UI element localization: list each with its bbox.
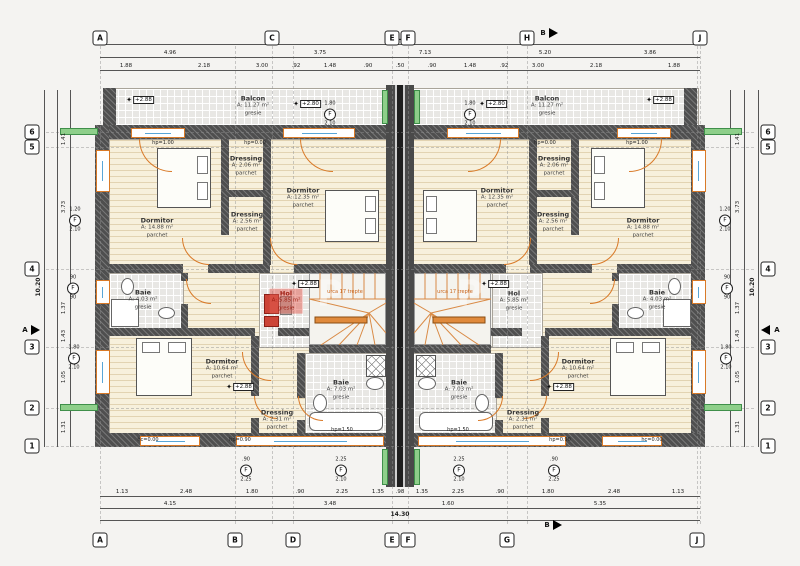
section-label-B: B — [544, 521, 549, 529]
window-type-icon: F — [335, 464, 347, 476]
section-arrow-B — [549, 28, 558, 38]
dimension-line — [100, 70, 700, 71]
sill-height-label: hp=0.00 — [534, 140, 556, 146]
room-name: Dormitor — [206, 358, 239, 366]
level-value: +2.88 — [653, 96, 674, 104]
room-area: A: 14.88 m² — [627, 225, 660, 232]
window-width: 1.20 — [719, 208, 731, 214]
room-name: Dressing — [507, 409, 539, 417]
grid-axis-line — [272, 46, 273, 524]
level-star-icon: ✦ — [293, 100, 299, 108]
sill-height-label: hc=0.00 — [641, 437, 662, 443]
room-label-hol[interactable]: HolA: 5.85 m²gresie — [270, 289, 303, 314]
window-height: 2.25 — [548, 477, 560, 483]
section-label-A: A — [774, 326, 779, 334]
room-name: Hol — [280, 290, 292, 298]
window-marker: 1.80F2.10 — [324, 102, 336, 127]
room-area: A: 2.31 m² — [261, 417, 293, 424]
room-label-dressing[interactable]: DressingA: 2.06 m²parchet — [230, 155, 262, 178]
room-floor-finish: parchet — [261, 424, 293, 431]
room-label-dormitor[interactable]: DormitorA: 12.35 m²parchet — [481, 187, 514, 210]
dimension-text: 3.86 — [644, 50, 656, 56]
grid-marker-F: F — [401, 31, 416, 46]
dimension-text: .50 — [396, 63, 405, 69]
dimension-text: 1.48 — [464, 63, 476, 69]
insulation-bar — [704, 404, 742, 411]
window-type-icon: F — [719, 214, 731, 226]
room-floor-finish: parchet — [481, 202, 514, 209]
window-width: 2.25 — [453, 458, 465, 464]
dimension-line — [730, 90, 731, 447]
room-area: A: 11.27 m² — [531, 103, 563, 110]
grid-marker-A: A — [93, 31, 108, 46]
room-floor-finish: parchet — [231, 226, 263, 233]
dimension-text: 7.13 — [419, 50, 431, 56]
sill-height-label: hp=0.90 — [549, 437, 571, 443]
dimension-text: 3.00 — [532, 63, 544, 69]
dim-total-width-bottom: 14.30 — [391, 511, 410, 518]
level-badge: ✦+2.88 — [481, 280, 509, 288]
window-frame — [131, 128, 185, 138]
level-value: +2.80 — [486, 100, 507, 108]
grid-marker-3: 3 — [25, 340, 40, 355]
room-floor-finish: parchet — [230, 170, 262, 177]
window-marker: 90F90 — [67, 276, 79, 301]
interior-wall — [297, 420, 305, 433]
room-name: Baie — [649, 289, 665, 297]
dimension-text: .92 — [500, 63, 509, 69]
window-width: 2.25 — [335, 458, 347, 464]
room-floor-finish: parchet — [538, 170, 570, 177]
room-label-dormitor[interactable]: DormitorA: 12.35 m²parchet — [287, 187, 320, 210]
room-name: Dormitor — [141, 217, 174, 225]
dimension-text: 1.80 — [246, 489, 258, 495]
room-name: Dressing — [537, 211, 569, 219]
bed-pillow — [197, 156, 208, 174]
level-value: +2.88 — [133, 96, 154, 104]
window-frame — [96, 150, 110, 192]
dimension-text: .90 — [428, 63, 437, 69]
sill-height-label: hp=1.00 — [626, 140, 648, 146]
dimension-text: 2.18 — [198, 63, 210, 69]
room-name: Dormitor — [481, 187, 514, 195]
bed-pillow — [426, 218, 437, 234]
dimension-line — [100, 496, 700, 497]
grid-axis-line — [408, 46, 409, 524]
grid-axis-line — [527, 46, 528, 524]
window-frame — [692, 280, 706, 304]
level-badge: ✦+2.88 — [226, 383, 254, 391]
level-badge: ✦+2.88 — [291, 280, 319, 288]
dimension-text: 3.73 — [735, 201, 741, 213]
sink — [158, 307, 175, 319]
closet-hatched — [366, 355, 386, 377]
grid-marker-2: 2 — [761, 401, 776, 416]
room-name: Dressing — [538, 155, 570, 163]
level-badge: ✦+2.80 — [293, 100, 321, 108]
dim-total-height-right: 10.20 — [749, 278, 756, 297]
room-name: Dressing — [231, 211, 263, 219]
room-floor-finish: parchet — [537, 226, 569, 233]
interior-wall — [495, 420, 503, 433]
dimension-text: 1.80 — [542, 489, 554, 495]
window-type-icon: F — [720, 352, 732, 364]
room-label-baie[interactable]: BaieA: 4.03 m²gresie — [129, 289, 158, 312]
level-star-icon: ✦ — [646, 96, 652, 104]
insulation-bar — [414, 90, 420, 124]
dimension-text: 1.35 — [372, 489, 384, 495]
dimension-text: 1.13 — [116, 489, 128, 495]
window-frame — [692, 150, 706, 192]
interior-wall — [181, 304, 188, 328]
bed-pillow — [642, 342, 660, 353]
room-name: Balcon — [241, 95, 266, 103]
room-floor-finish: gresie — [129, 304, 158, 311]
room-name: Baie — [333, 379, 349, 387]
interior-wall — [495, 353, 503, 398]
sill-height-label: hp=0.00 — [244, 140, 266, 146]
dimension-text: 3.75 — [314, 50, 326, 56]
dimension-text: 5.35 — [594, 501, 606, 507]
dimension-text: .90 — [296, 489, 305, 495]
interior-wall — [529, 190, 579, 197]
grid-marker-5: 5 — [25, 140, 40, 155]
sill-height-label: hp=1.00 — [152, 140, 174, 146]
dimension-text: 4.96 — [164, 50, 176, 56]
room-label-balcon[interactable]: BalconA: 11.27 m²gresie — [531, 95, 563, 118]
window-type-icon: F — [324, 108, 336, 120]
section-arrow-A — [31, 325, 40, 335]
grid-axis-line — [392, 46, 393, 524]
room-label-dormitor[interactable]: DormitorA: 14.88 m²parchet — [141, 217, 174, 240]
dimension-text: 1.35 — [416, 489, 428, 495]
window-frame — [617, 128, 671, 138]
stair-note: urca 17 trepte — [437, 289, 473, 295]
window-width: 1.80 — [324, 102, 336, 108]
insulation-bar — [60, 404, 98, 411]
dimension-text: .90 — [496, 489, 505, 495]
sink — [366, 377, 384, 390]
party-wall — [386, 85, 414, 487]
dimension-text: 2.18 — [590, 63, 602, 69]
dimension-text: 1.41 — [735, 133, 741, 145]
dimension-line — [100, 57, 700, 58]
dimension-text: 1.31 — [61, 421, 67, 433]
window-marker: 2.25F2.10 — [453, 458, 465, 483]
interior-wall — [545, 328, 691, 336]
window-width: 90 — [721, 276, 733, 282]
dimension-line — [100, 508, 700, 509]
level-value: +2.80 — [300, 100, 321, 108]
room-floor-finish: gresie — [237, 110, 269, 117]
grid-marker-1: 1 — [25, 439, 40, 454]
window-type-icon: F — [453, 464, 465, 476]
dimension-text: 2.48 — [180, 489, 192, 495]
room-label-dormitor[interactable]: DormitorA: 10.64 m²parchet — [206, 358, 239, 381]
level-value: +2.88 — [233, 383, 254, 391]
grid-marker-4: 4 — [761, 262, 776, 277]
interior-wall — [541, 418, 549, 433]
room-floor-finish: parchet — [627, 232, 660, 239]
bed-pillow — [365, 196, 376, 212]
window-type-icon: F — [240, 464, 252, 476]
room-area: A: 10.64 m² — [206, 366, 239, 373]
window-frame — [692, 350, 706, 394]
balcony-end-left — [103, 88, 116, 127]
grid-marker-E: E — [385, 31, 400, 46]
room-label-hol[interactable]: HolA: 5.85 m²gresie — [500, 290, 529, 313]
room-area: A: 2.06 m² — [230, 163, 262, 170]
level-star-icon: ✦ — [126, 96, 132, 104]
room-label-baie[interactable]: BaieA: 4.03 m²gresie — [643, 289, 672, 312]
window-frame — [283, 128, 355, 138]
window-width: 1.80 — [68, 346, 80, 352]
level-star-icon: ✦ — [481, 280, 487, 288]
window-height: 90 — [721, 295, 733, 301]
grid-axis-line — [46, 408, 754, 409]
dimension-line — [57, 90, 58, 447]
grid-axis-line — [46, 269, 754, 270]
room-floor-finish: gresie — [531, 110, 563, 117]
room-area: A: 2.31 m² — [507, 417, 539, 424]
interior-wall — [297, 353, 305, 398]
window-marker: 1.80F2.10 — [720, 346, 732, 371]
dimension-text: 3.73 — [61, 201, 67, 213]
room-name: Baie — [451, 379, 467, 387]
bed-pillow — [142, 342, 160, 353]
grid-marker-J: J — [690, 533, 705, 548]
grid-marker-F: F — [401, 533, 416, 548]
room-label-dressing[interactable]: DressingA: 2.31 m²parchet — [507, 409, 539, 432]
level-badge: ✦+2.88 — [546, 383, 574, 391]
window-frame — [418, 436, 566, 446]
section-label-A: A — [22, 326, 27, 334]
dimension-line — [70, 90, 71, 447]
dimension-text: .92 — [292, 63, 301, 69]
room-name: Balcon — [535, 95, 560, 103]
interior-wall — [251, 418, 259, 433]
grid-marker-1: 1 — [761, 439, 776, 454]
window-marker: 1.80F2.10 — [464, 102, 476, 127]
room-floor-finish: parchet — [141, 232, 174, 239]
dimension-text: 1.88 — [120, 63, 132, 69]
bed-pillow — [616, 342, 634, 353]
level-badge: ✦+2.88 — [646, 96, 674, 104]
window-frame — [447, 128, 519, 138]
window-frame — [236, 436, 384, 446]
selected-furniture — [264, 316, 279, 327]
window-type-icon: F — [721, 282, 733, 294]
interior-wall — [529, 139, 537, 265]
grid-marker-H: H — [520, 31, 535, 46]
interior-wall — [221, 139, 229, 235]
room-floor-finish: parchet — [507, 424, 539, 431]
bed-pillow — [594, 182, 605, 200]
level-star-icon: ✦ — [546, 383, 552, 391]
window-width: 1.80 — [720, 346, 732, 352]
room-area: A: 7.03 m² — [445, 387, 474, 394]
bed-pillow — [594, 156, 605, 174]
dimension-text: 1.13 — [672, 489, 684, 495]
bed-pillow — [365, 218, 376, 234]
level-star-icon: ✦ — [291, 280, 297, 288]
bed-pillow — [197, 182, 208, 200]
window-height: 2.10 — [453, 477, 465, 483]
window-height: 2.25 — [240, 477, 252, 483]
dimension-text: 2.25 — [336, 489, 348, 495]
room-area: A: 2.06 m² — [538, 163, 570, 170]
window-height: 90 — [67, 295, 79, 301]
insulation-bar — [414, 449, 420, 485]
grid-marker-B: B — [228, 533, 243, 548]
grid-marker-G: G — [500, 533, 515, 548]
dimension-line — [758, 90, 759, 447]
interior-wall — [571, 139, 579, 235]
window-marker: 1.20F2.10 — [69, 208, 81, 233]
room-label-dressing[interactable]: DressingA: 2.56 m²parchet — [231, 211, 263, 234]
grid-marker-6: 6 — [761, 125, 776, 140]
room-area: A: 7.03 m² — [327, 387, 356, 394]
room-name: Hol — [508, 290, 520, 298]
dimension-text: .98 — [396, 489, 405, 495]
room-name: Dormitor — [627, 217, 660, 225]
level-badge: ✦+2.88 — [126, 96, 154, 104]
window-marker: .90F2.25 — [240, 458, 252, 483]
window-width: 1.20 — [69, 208, 81, 214]
sill-height-label: hp=1.50 — [331, 427, 353, 433]
insulation-bar — [382, 90, 388, 124]
stair-note: urca 17 trepte — [327, 289, 363, 295]
room-name: Baie — [135, 289, 151, 297]
grid-axis-line — [235, 46, 236, 524]
floor-plan: 14.30 14.30 10.20 10.20 ACEFHJABDEFGJ654… — [0, 0, 800, 566]
grid-marker-C: C — [265, 31, 280, 46]
room-area: A: 10.64 m² — [562, 366, 595, 373]
level-star-icon: ✦ — [226, 383, 232, 391]
room-area: A: 14.88 m² — [141, 225, 174, 232]
room-label-dormitor[interactable]: DormitorA: 14.88 m²parchet — [627, 217, 660, 240]
room-label-baie[interactable]: BaieA: 7.03 m²gresie — [445, 379, 474, 402]
window-frame — [96, 350, 110, 394]
dimension-text: 1.43 — [735, 330, 741, 342]
dimension-text: .90 — [364, 63, 373, 69]
room-floor-finish: gresie — [327, 394, 356, 401]
grid-marker-E: E — [385, 533, 400, 548]
window-height: 2.10 — [68, 365, 80, 371]
window-type-icon: F — [464, 108, 476, 120]
room-label-baie[interactable]: BaieA: 7.03 m²gresie — [327, 379, 356, 402]
window-marker: 90F90 — [721, 276, 733, 301]
interior-wall — [263, 139, 271, 265]
window-height: 2.10 — [335, 477, 347, 483]
room-area: A: 11.27 m² — [237, 103, 269, 110]
room-floor-finish: parchet — [562, 373, 595, 380]
level-badge: ✦+2.80 — [479, 100, 507, 108]
window-type-icon: F — [69, 214, 81, 226]
room-name: Dressing — [261, 409, 293, 417]
dimension-text: 1.48 — [324, 63, 336, 69]
window-width: 90 — [67, 276, 79, 282]
room-name: Dressing — [230, 155, 262, 163]
room-name: Dormitor — [287, 187, 320, 195]
level-value: +2.88 — [553, 383, 574, 391]
dimension-text: 1.05 — [61, 371, 67, 383]
sink — [418, 377, 436, 390]
room-name: Dormitor — [562, 358, 595, 366]
interior-wall — [612, 304, 619, 328]
dimension-line — [44, 90, 45, 447]
dimension-text: 3.00 — [256, 63, 268, 69]
window-marker: .90F2.25 — [548, 458, 560, 483]
window-type-icon: F — [548, 464, 560, 476]
insulation-bar — [382, 449, 388, 485]
grid-marker-4: 4 — [25, 262, 40, 277]
window-width: .90 — [240, 458, 252, 464]
window-marker: 2.25F2.10 — [335, 458, 347, 483]
room-label-dressing[interactable]: DressingA: 2.56 m²parchet — [537, 211, 569, 234]
grid-marker-D: D — [286, 533, 301, 548]
dimension-text: 5.20 — [539, 50, 551, 56]
room-area: A: 4.03 m² — [129, 297, 158, 304]
sill-height-label: hp=1.50 — [447, 427, 469, 433]
room-floor-finish: gresie — [500, 305, 529, 312]
grid-axis-line — [46, 446, 754, 447]
level-value: +2.88 — [298, 280, 319, 288]
room-floor-finish: gresie — [272, 305, 301, 312]
room-floor-finish: parchet — [206, 373, 239, 380]
level-value: +2.88 — [488, 280, 509, 288]
grid-marker-5: 5 — [761, 140, 776, 155]
grid-marker-J: J — [693, 31, 708, 46]
room-label-dressing[interactable]: DressingA: 2.31 m²parchet — [261, 409, 293, 432]
window-width: .90 — [548, 458, 560, 464]
grid-marker-A: A — [93, 533, 108, 548]
dimension-text: 3.48 — [324, 501, 336, 507]
balcony-end-right — [684, 88, 697, 127]
window-height: 2.10 — [720, 365, 732, 371]
bed-pillow — [426, 196, 437, 212]
window-height: 2.10 — [69, 227, 81, 233]
room-floor-finish: gresie — [445, 394, 474, 401]
room-area: A: 2.56 m² — [231, 219, 263, 226]
level-star-icon: ✦ — [479, 100, 485, 108]
dimension-text: 1.37 — [61, 302, 67, 314]
window-height: 2.10 — [464, 121, 476, 127]
dimension-text: 2.25 — [452, 489, 464, 495]
section-arrow-A — [761, 325, 770, 335]
closet-hatched — [416, 355, 436, 377]
dimension-text: 1.05 — [735, 371, 741, 383]
sink — [627, 307, 644, 319]
dim-total-height-left: 10.20 — [35, 278, 42, 297]
room-floor-finish: parchet — [287, 202, 320, 209]
window-frame — [96, 280, 110, 304]
grid-marker-3: 3 — [761, 340, 776, 355]
dimension-line — [744, 90, 745, 447]
room-label-dormitor[interactable]: DormitorA: 10.64 m²parchet — [562, 358, 595, 381]
room-label-balcon[interactable]: BalconA: 11.27 m²gresie — [237, 95, 269, 118]
room-floor-finish: gresie — [643, 304, 672, 311]
window-height: 2.10 — [719, 227, 731, 233]
window-marker: 1.80F2.10 — [68, 346, 80, 371]
interior-wall — [221, 190, 271, 197]
sill-height-label: hc=0.00 — [137, 437, 158, 443]
room-label-dressing[interactable]: DressingA: 2.06 m²parchet — [538, 155, 570, 178]
dimension-text: 1.43 — [61, 330, 67, 342]
window-height: 2.10 — [324, 121, 336, 127]
room-area: A: 2.56 m² — [537, 219, 569, 226]
dimension-text: 1.41 — [61, 133, 67, 145]
